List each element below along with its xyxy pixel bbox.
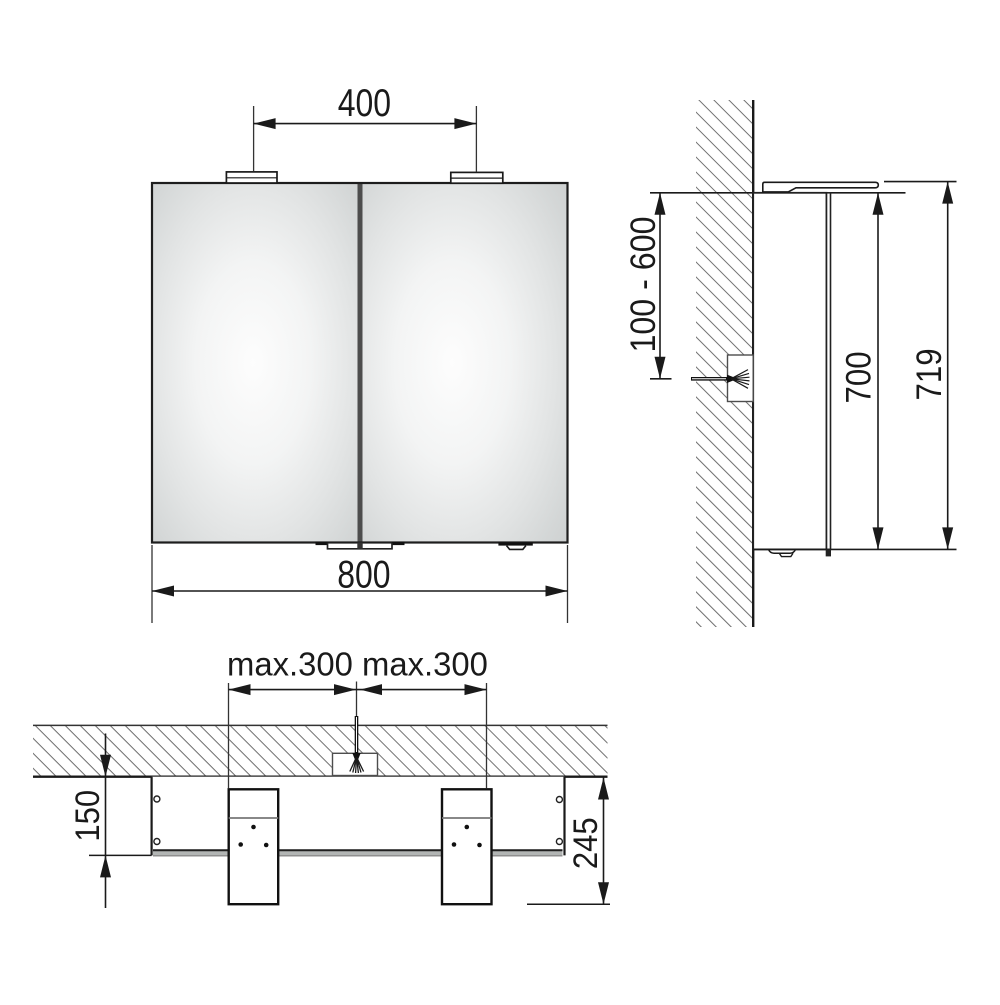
- svg-text:150: 150: [67, 790, 106, 842]
- svg-text:800: 800: [337, 553, 390, 597]
- svg-text:245: 245: [565, 817, 604, 869]
- svg-text:719: 719: [910, 348, 949, 400]
- svg-text:100 - 600: 100 - 600: [625, 217, 664, 353]
- svg-text:400: 400: [338, 81, 391, 125]
- svg-text:700: 700: [840, 351, 879, 403]
- svg-text:max.300 max.300: max.300 max.300: [227, 646, 488, 683]
